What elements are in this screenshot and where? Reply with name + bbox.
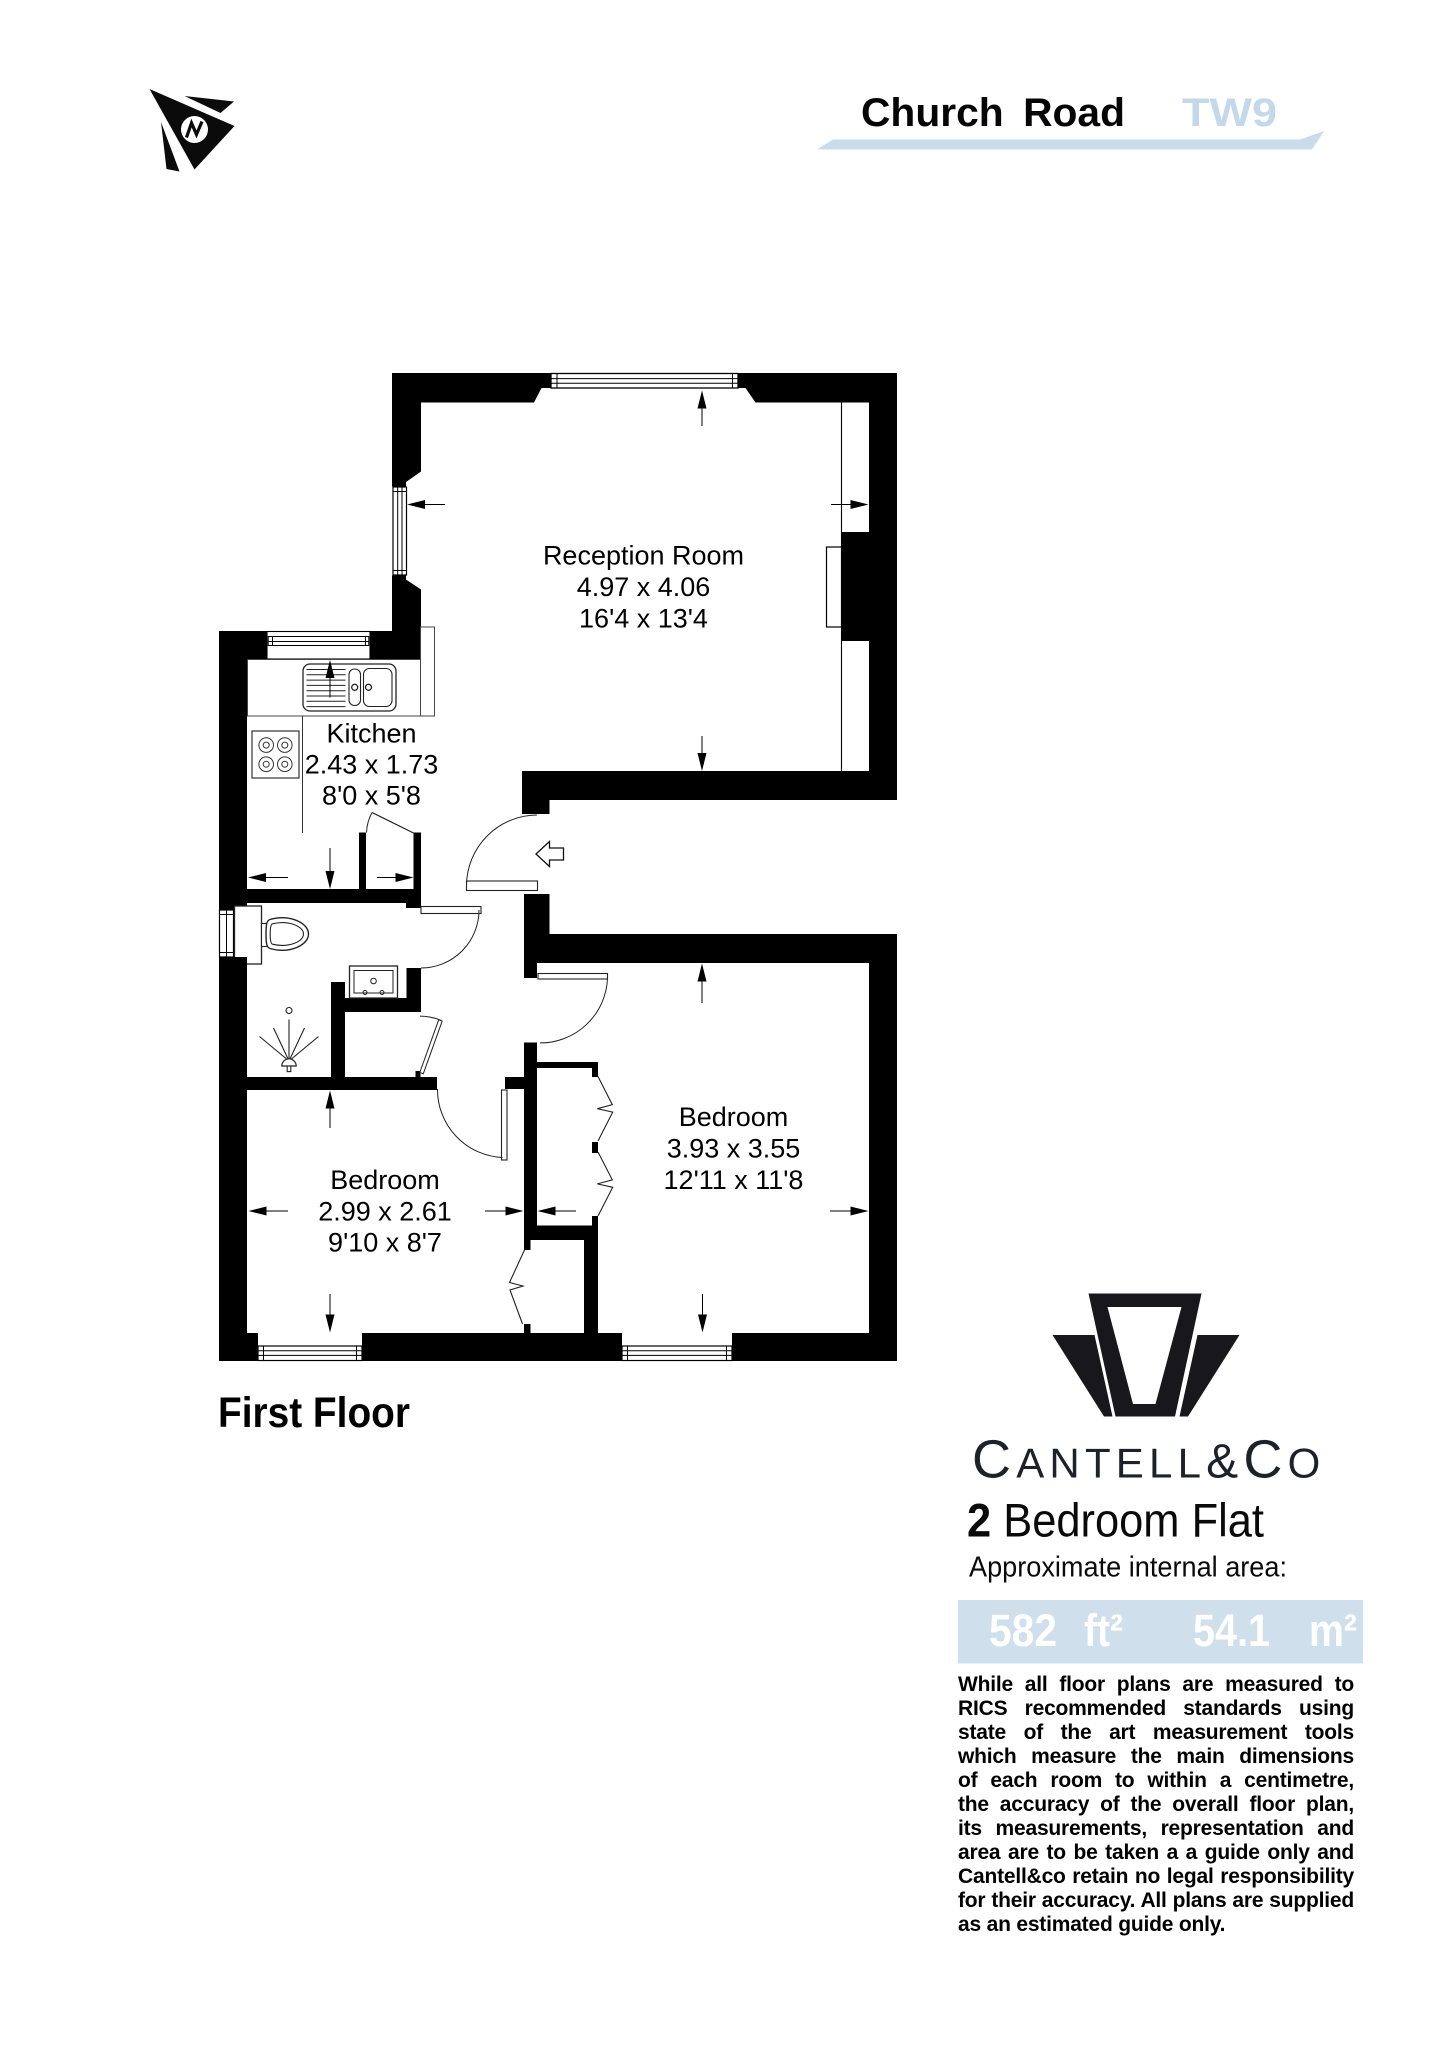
svg-text:ft²: ft² xyxy=(1084,1605,1123,1656)
svg-text:2.99 x 2.61: 2.99 x 2.61 xyxy=(318,1197,452,1227)
svg-text:9'10 x 8'7: 9'10 x 8'7 xyxy=(328,1228,442,1258)
svg-text:12'11 x 11'8: 12'11 x 11'8 xyxy=(664,1165,804,1195)
svg-text:8'0 x 5'8: 8'0 x 5'8 xyxy=(322,781,421,811)
svg-text:First Floor: First Floor xyxy=(218,1389,410,1437)
svg-text:Bedroom: Bedroom xyxy=(679,1102,789,1132)
svg-text:Bedroom: Bedroom xyxy=(330,1165,440,1195)
svg-text:582: 582 xyxy=(989,1605,1057,1656)
svg-text:3.93 x 3.55: 3.93 x 3.55 xyxy=(667,1134,801,1164)
svg-text:2 Bedroom Flat: 2 Bedroom Flat xyxy=(967,1494,1264,1547)
svg-text:4.97 x 4.06: 4.97 x 4.06 xyxy=(577,572,711,602)
svg-text:54.1: 54.1 xyxy=(1193,1605,1270,1656)
svg-text:Church Road: Church Road xyxy=(861,91,1125,135)
svg-text:16'4 x 13'4: 16'4 x 13'4 xyxy=(579,604,708,634)
svg-text:TW9: TW9 xyxy=(1182,91,1277,135)
svg-text:2.43 x 1.73: 2.43 x 1.73 xyxy=(305,750,439,780)
svg-text:Reception Room: Reception Room xyxy=(543,541,744,571)
svg-text:Kitchen: Kitchen xyxy=(326,719,416,749)
svg-text:m²: m² xyxy=(1309,1605,1357,1656)
svg-text:Approximate internal area:: Approximate internal area: xyxy=(969,1552,1287,1584)
